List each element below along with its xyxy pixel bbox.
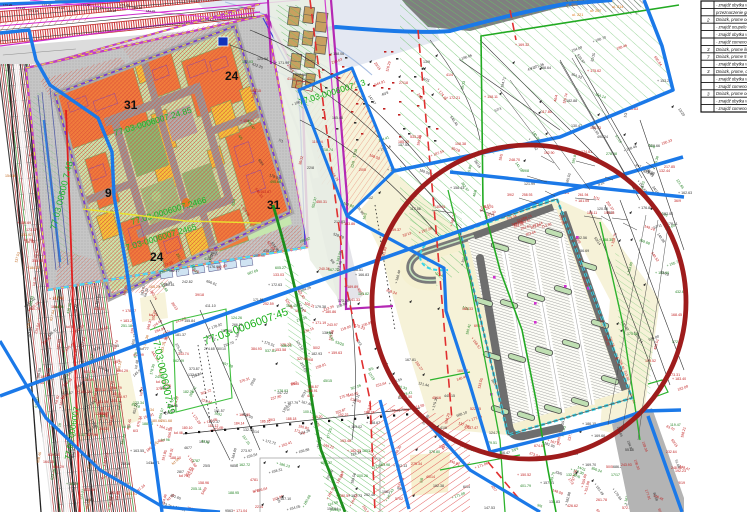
svg-text:kd 77: kd 77 — [140, 347, 149, 351]
svg-text:266.21: 266.21 — [232, 323, 243, 327]
svg-text:132.44: 132.44 — [659, 169, 670, 173]
svg-text:ul. 221: ul. 221 — [572, 13, 583, 17]
svg-text:565.32: 565.32 — [95, 388, 106, 392]
svg-text:41/16: 41/16 — [287, 77, 296, 81]
svg-text:+ 163.55: + 163.55 — [130, 449, 144, 453]
svg-text:+ 183.27: + 183.27 — [120, 319, 134, 323]
svg-text:161.57: 161.57 — [214, 409, 225, 413]
svg-text:100.17: 100.17 — [303, 410, 314, 414]
svg-text:+ 169.70: + 169.70 — [582, 463, 596, 467]
svg-text:9856: 9856 — [230, 464, 238, 468]
svg-text:39/2: 39/2 — [507, 193, 514, 197]
svg-text:164.15: 164.15 — [43, 460, 54, 464]
svg-text:ul. 207: ul. 207 — [590, 9, 601, 13]
svg-text:+ 176.84: + 176.84 — [638, 206, 652, 210]
svg-text:+ 188.67: + 188.67 — [366, 421, 380, 425]
svg-text:kd 46: kd 46 — [174, 431, 183, 435]
svg-text:205.11: 205.11 — [191, 487, 202, 491]
svg-text:180.81: 180.81 — [164, 283, 175, 287]
svg-text:355.95: 355.95 — [32, 259, 43, 263]
svg-text:45/16: 45/16 — [432, 396, 441, 400]
svg-text:134.09: 134.09 — [330, 508, 341, 512]
svg-text:666.29: 666.29 — [53, 465, 64, 469]
svg-text:24/10: 24/10 — [99, 427, 108, 431]
svg-text:217.85: 217.85 — [664, 165, 675, 169]
svg-text:188.18: 188.18 — [286, 417, 296, 421]
svg-text:450.31: 450.31 — [316, 200, 327, 204]
svg-text:186.16: 186.16 — [260, 419, 270, 423]
svg-text:+ 159.63: + 159.63 — [328, 351, 342, 355]
svg-text:+ 162.72: + 162.72 — [236, 463, 250, 467]
svg-text:Dniazk, prome 5 a: Dniazk, prome 5 a — [716, 54, 747, 59]
svg-text:104.96: 104.96 — [167, 404, 178, 408]
svg-text:358.91: 358.91 — [307, 389, 318, 393]
svg-text:217.76: 217.76 — [483, 205, 493, 209]
svg-text:108.38: 108.38 — [455, 142, 466, 146]
svg-text:261.94: 261.94 — [578, 193, 588, 197]
svg-text:117.80: 117.80 — [541, 110, 552, 114]
svg-text:109.44: 109.44 — [221, 329, 232, 333]
svg-text:603.21: 603.21 — [94, 307, 105, 311]
svg-text:24: 24 — [225, 69, 239, 83]
svg-text:41/4: 41/4 — [446, 73, 453, 77]
svg-text:386.20: 386.20 — [281, 344, 292, 348]
svg-text:133.03: 133.03 — [273, 273, 284, 277]
svg-text:258.93: 258.93 — [522, 193, 532, 197]
svg-text:50/2: 50/2 — [313, 346, 320, 350]
svg-text:1853: 1853 — [362, 449, 370, 453]
svg-text:7388: 7388 — [401, 408, 409, 412]
svg-text:- znajdź comenou: - znajdź comenou — [716, 39, 747, 44]
svg-text:181.37: 181.37 — [175, 333, 186, 337]
svg-text:154.56: 154.56 — [5, 174, 16, 178]
svg-text:26/16: 26/16 — [121, 462, 130, 466]
svg-text:242.82: 242.82 — [182, 280, 193, 284]
svg-text:174.24: 174.24 — [55, 6, 65, 10]
svg-text:40/14: 40/14 — [426, 475, 435, 479]
svg-text:102.07: 102.07 — [62, 391, 73, 395]
svg-text:188.10: 188.10 — [170, 456, 181, 460]
svg-text:525.64: 525.64 — [208, 248, 219, 252]
svg-text:278.58: 278.58 — [606, 152, 617, 156]
svg-text:+ 169.66: + 169.66 — [591, 434, 605, 438]
svg-text:+ 169.32: + 169.32 — [515, 43, 529, 47]
svg-text:28/7: 28/7 — [177, 470, 184, 474]
svg-text:39/18: 39/18 — [195, 293, 204, 297]
svg-text:- znajdź obytka w: - znajdź obytka w — [716, 99, 747, 104]
svg-text:4677: 4677 — [184, 446, 192, 450]
svg-text:460.74: 460.74 — [29, 307, 40, 311]
svg-text:158.96: 158.96 — [198, 481, 209, 485]
svg-text:188.95: 188.95 — [228, 491, 239, 495]
svg-text:384.93: 384.93 — [251, 347, 262, 351]
svg-text:189.45: 189.45 — [286, 304, 297, 308]
svg-text:173.17: 173.17 — [26, 228, 37, 232]
svg-text:25/5: 25/5 — [203, 464, 210, 468]
svg-text:141.33: 141.33 — [349, 298, 360, 302]
svg-text:196.26: 196.26 — [390, 408, 400, 412]
svg-text:261.78: 261.78 — [596, 498, 607, 502]
svg-text:+ 169.02: + 169.02 — [348, 425, 362, 429]
svg-text:kd 16: kd 16 — [85, 498, 94, 502]
svg-text:275.34: 275.34 — [411, 462, 422, 466]
svg-text:50/5: 50/5 — [606, 465, 613, 469]
svg-text:4781: 4781 — [250, 478, 258, 482]
svg-text:185.33: 185.33 — [462, 307, 473, 311]
svg-text:194.24: 194.24 — [364, 411, 374, 415]
svg-text:+ 158.06: + 158.06 — [330, 52, 344, 56]
svg-text:+ 152.13: + 152.13 — [393, 464, 407, 468]
svg-text:5965: 5965 — [291, 382, 299, 386]
svg-text:192.38: 192.38 — [433, 484, 444, 488]
svg-text:+ 158.43: + 158.43 — [450, 186, 464, 190]
svg-text:167.81: 167.81 — [405, 358, 416, 362]
svg-text:378.80: 378.80 — [429, 450, 440, 454]
svg-text:171.81: 171.81 — [253, 298, 264, 302]
svg-text:362.77: 362.77 — [169, 269, 180, 273]
svg-text:373.87: 373.87 — [189, 367, 200, 371]
svg-text:495.66: 495.66 — [270, 180, 281, 184]
svg-text:+ 184.37: + 184.37 — [26, 266, 40, 270]
svg-text:176.26: 176.26 — [81, 3, 91, 7]
svg-text:+ 150.52: + 150.52 — [517, 473, 531, 477]
svg-text:243.93: 243.93 — [621, 463, 632, 467]
svg-text:+ 182.93: + 182.93 — [308, 352, 322, 356]
svg-text:+ 162.63: + 162.63 — [678, 191, 692, 195]
svg-text:Dniazk, prome od: Dniazk, prome od — [716, 91, 747, 96]
svg-text:przeznaczenie gruntów: przeznaczenie gruntów — [715, 10, 747, 15]
svg-text:411.10: 411.10 — [205, 304, 216, 308]
svg-text:ul. 214: ul. 214 — [612, 5, 623, 9]
svg-text:261.68: 261.68 — [161, 419, 172, 423]
svg-text:3787: 3787 — [192, 459, 200, 463]
svg-text:639.14: 639.14 — [48, 453, 59, 457]
svg-text:- znajdź comenou: - znajdź comenou — [716, 106, 747, 111]
svg-text:36/9: 36/9 — [674, 199, 681, 203]
svg-text:- znajdź obytka w: - znajdź obytka w — [716, 32, 747, 37]
svg-text:47/15: 47/15 — [110, 344, 119, 348]
svg-text:600.50: 600.50 — [84, 488, 95, 492]
svg-text:274.65: 274.65 — [204, 347, 215, 351]
svg-text:232.64: 232.64 — [666, 450, 677, 454]
svg-text:10/14: 10/14 — [112, 392, 121, 396]
svg-text:Dniazk, prome ilm: Dniazk, prome ilm — [716, 47, 747, 52]
svg-text:56/7: 56/7 — [158, 439, 165, 443]
svg-text:147.53: 147.53 — [484, 506, 495, 510]
svg-text:+ 172.21: + 172.21 — [446, 96, 460, 100]
svg-text:+ 166.83: + 166.83 — [355, 273, 369, 277]
svg-text:199.26: 199.26 — [604, 211, 614, 215]
svg-text:9: 9 — [105, 186, 112, 200]
svg-text:+ 183.40: + 183.40 — [672, 377, 686, 381]
svg-text:+ 181.05: + 181.05 — [575, 199, 589, 203]
svg-text:+ 158.11: + 158.11 — [484, 95, 498, 99]
svg-text:170.20: 170.20 — [3, 3, 13, 7]
svg-text:kd 59: kd 59 — [122, 425, 131, 429]
svg-text:243.97: 243.97 — [327, 323, 338, 327]
svg-text:6/3: 6/3 — [133, 429, 138, 433]
svg-text:Dniazk, prome, od: Dniazk, prome, od — [716, 69, 747, 74]
svg-text:193.48: 193.48 — [340, 439, 351, 443]
svg-text:24: 24 — [150, 250, 164, 264]
svg-text:+ 163.19: + 163.19 — [77, 390, 91, 394]
svg-text:290.49: 290.49 — [254, 254, 265, 258]
svg-text:181.31: 181.31 — [146, 9, 156, 13]
svg-text:6/14: 6/14 — [463, 485, 470, 489]
svg-text:20/5: 20/5 — [359, 168, 366, 172]
svg-text:435.21: 435.21 — [263, 249, 274, 253]
svg-text:180.61: 180.61 — [435, 205, 445, 209]
svg-text:153.92: 153.92 — [21, 233, 32, 237]
svg-text:ul. 200: ul. 200 — [566, 3, 577, 7]
svg-text:22/8: 22/8 — [307, 166, 314, 170]
svg-text:- znajdź obytka w: - znajdź obytka w — [716, 62, 747, 67]
svg-text:605.27: 605.27 — [275, 266, 286, 270]
svg-text:+ 171.19: + 171.19 — [312, 321, 326, 325]
svg-text:252.48: 252.48 — [364, 493, 375, 497]
svg-text:200.26: 200.26 — [357, 474, 368, 478]
svg-text:168.45: 168.45 — [671, 313, 682, 317]
svg-text:173.23: 173.23 — [42, 3, 52, 7]
svg-text:213.83: 213.83 — [334, 220, 345, 224]
svg-text:180.30: 180.30 — [133, 6, 143, 10]
svg-text:252.59: 252.59 — [263, 302, 274, 306]
svg-text:2234: 2234 — [255, 505, 263, 509]
svg-text:179.29: 179.29 — [120, 3, 130, 7]
svg-text:178.28: 178.28 — [107, 9, 117, 13]
svg-text:13/9: 13/9 — [423, 60, 430, 64]
svg-text:kd 79: kd 79 — [113, 386, 122, 390]
svg-text:192.90: 192.90 — [544, 151, 554, 155]
svg-text:139.82: 139.82 — [358, 292, 369, 296]
svg-text:251.18: 251.18 — [121, 324, 132, 328]
svg-text:- znajdź obytka w: - znajdź obytka w — [716, 76, 747, 81]
svg-text:401.79: 401.79 — [520, 484, 531, 488]
svg-text:273.97: 273.97 — [241, 449, 252, 453]
svg-text:kd 46: kd 46 — [55, 305, 64, 309]
svg-text:165.48: 165.48 — [332, 116, 343, 120]
svg-text:184.14: 184.14 — [234, 422, 244, 426]
svg-text:27/18: 27/18 — [399, 81, 408, 85]
svg-text:336.57: 336.57 — [308, 385, 319, 389]
svg-text:240.36: 240.36 — [319, 267, 330, 271]
svg-text:5702: 5702 — [395, 497, 403, 501]
svg-text:17/17: 17/17 — [611, 473, 620, 477]
svg-text:2: 2 — [706, 17, 710, 22]
svg-text:+ 187.79: + 187.79 — [284, 401, 298, 405]
svg-text:+ 153.58: + 153.58 — [272, 348, 286, 352]
svg-text:172.22: 172.22 — [29, 9, 39, 13]
svg-text:117.00: 117.00 — [53, 296, 64, 300]
svg-text:45/15: 45/15 — [323, 379, 332, 383]
svg-text:205.11: 205.11 — [111, 399, 122, 403]
svg-text:kd 90: kd 90 — [26, 240, 35, 244]
svg-text:171.21: 171.21 — [16, 6, 26, 10]
svg-text:327.96: 327.96 — [297, 357, 308, 361]
svg-text:31: 31 — [124, 98, 138, 112]
svg-text:- znajdź comenou: - znajdź comenou — [716, 84, 747, 89]
svg-text:+ 180.69: + 180.69 — [17, 221, 31, 225]
svg-text:180.10: 180.10 — [182, 426, 192, 430]
svg-text:694.29: 694.29 — [117, 369, 128, 373]
svg-text:426.62: 426.62 — [567, 504, 578, 508]
svg-text:188.11: 188.11 — [587, 211, 597, 215]
svg-text:- znajdź ocupelo: - znajdź ocupelo — [716, 25, 747, 30]
svg-text:+ 172.63: + 172.63 — [268, 283, 282, 287]
svg-text:+ 187.10: + 187.10 — [277, 497, 291, 501]
svg-text:621.78: 621.78 — [84, 370, 95, 374]
svg-text:Dniazk, prome od: Dniazk, prome od — [716, 17, 747, 22]
svg-text:+ 175.62: + 175.62 — [587, 69, 601, 73]
svg-text:183.15: 183.15 — [250, 89, 261, 93]
svg-text:152.03: 152.03 — [242, 60, 253, 64]
svg-text:175.25: 175.25 — [68, 9, 78, 13]
svg-text:182.78: 182.78 — [183, 390, 194, 394]
svg-text:124.26: 124.26 — [231, 316, 242, 320]
svg-text:177.27: 177.27 — [94, 6, 104, 10]
svg-text:- znajdź obytka w: - znajdź obytka w — [716, 2, 747, 7]
